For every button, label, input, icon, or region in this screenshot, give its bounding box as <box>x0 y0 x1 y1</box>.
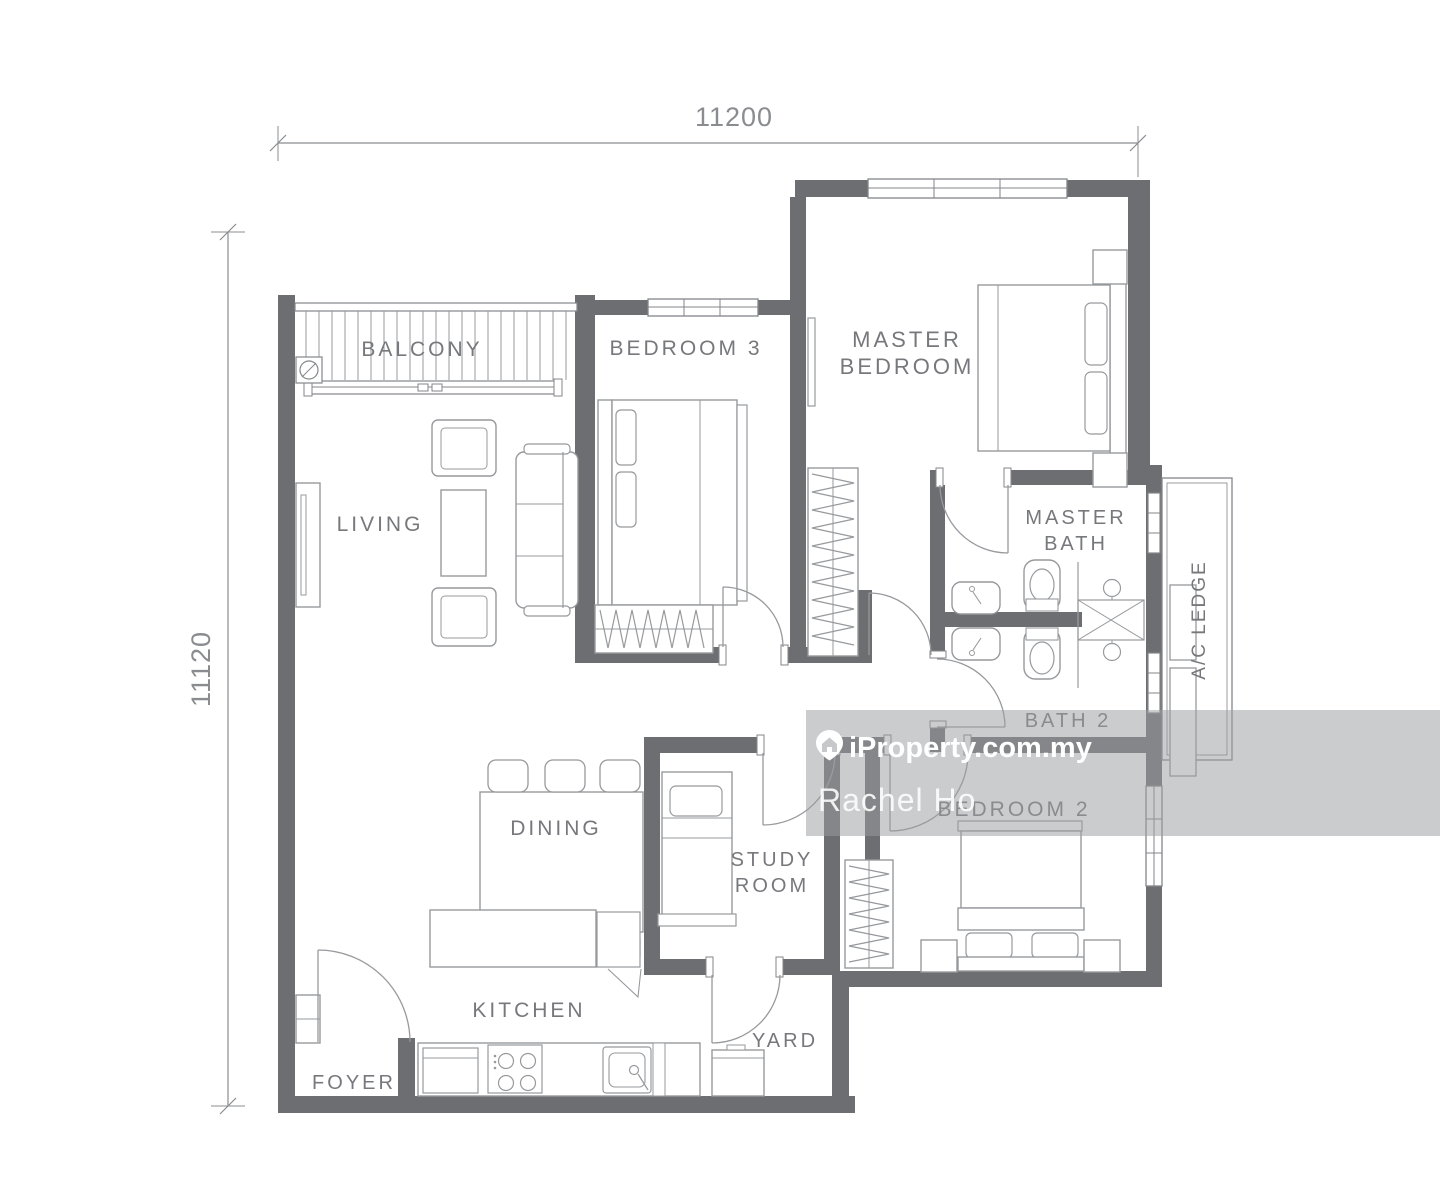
wall-bedroom2-bottom <box>832 971 1162 987</box>
master-tv <box>808 318 815 406</box>
wall-bedroom3-top-a <box>595 300 648 315</box>
sink-masterbath <box>952 582 1000 614</box>
dining-chair <box>488 760 528 792</box>
wall-between-baths <box>930 612 1082 627</box>
room-label-master-bedroom-2: BEDROOM <box>840 354 975 379</box>
pillow <box>1085 303 1107 365</box>
room-label-foyer: FOYER <box>312 1072 396 1094</box>
door-jamb <box>776 957 783 977</box>
wall-bedroom3-top-b <box>758 300 795 315</box>
nightstand <box>1093 453 1127 487</box>
wall-exterior-left <box>278 295 295 1113</box>
pillow <box>1085 372 1107 434</box>
dimension-left-value: 11120 <box>186 631 216 707</box>
stove-knob <box>494 1067 497 1070</box>
washer-lid <box>727 1045 745 1050</box>
window-masterbath <box>1148 493 1160 553</box>
door-jamb <box>781 645 788 665</box>
armchair <box>432 588 496 646</box>
door-jamb <box>936 468 943 487</box>
bed-headboard <box>598 400 612 605</box>
entrance-door-swing <box>318 950 410 1042</box>
room-label-bedroom3: BEDROOM 3 <box>609 337 762 360</box>
slider-handle <box>432 384 442 391</box>
toilet-tank <box>1026 599 1058 611</box>
shower-head <box>1104 580 1121 597</box>
stove <box>488 1045 542 1093</box>
wall-study-top <box>644 737 763 753</box>
nightstand <box>921 940 957 972</box>
stove-knob <box>494 1055 497 1058</box>
wall-hall-stub <box>858 590 872 663</box>
room-label-dining: DINING <box>510 817 602 840</box>
wall-study-bottom-b <box>780 959 840 975</box>
pillow <box>616 472 636 527</box>
wall-study-left <box>644 753 660 975</box>
bedroom2-bed <box>961 831 1081 908</box>
room-label-balcony: BALCONY <box>361 338 482 361</box>
room-label-kitchen: KITCHEN <box>472 999 585 1022</box>
washing-machine <box>712 1050 764 1096</box>
wall-bedroom2-right-b <box>1146 886 1162 971</box>
slider-handle <box>418 384 428 391</box>
floor-plan-page: BALCONYLIVINGBEDROOM 3MASTERBEDROOMMASTE… <box>0 0 1440 1183</box>
room-label-yard: YARD <box>752 1030 818 1052</box>
wall-corner-masterbath <box>1128 465 1162 485</box>
room-label-master-bedroom: MASTER <box>852 327 962 352</box>
bed2-blanket <box>958 908 1084 930</box>
dining-chair <box>545 760 585 792</box>
nightstand <box>1093 250 1127 284</box>
door-jamb <box>757 735 764 755</box>
dimension-top-value: 11200 <box>695 102 773 132</box>
bed-footboard <box>658 914 736 926</box>
bed-headboard <box>958 957 1084 971</box>
door-jamb <box>706 957 713 977</box>
tv <box>301 495 306 595</box>
fridge <box>423 1048 478 1093</box>
bed-footboard <box>737 405 747 601</box>
sink-unit <box>603 1047 651 1093</box>
nightstand <box>1084 940 1120 972</box>
wall-master-top-a <box>795 180 868 197</box>
kitchen-island <box>430 910 596 967</box>
pillow <box>966 933 1012 958</box>
dining-chair <box>600 760 640 792</box>
door-jamb <box>930 651 946 658</box>
room-label-master-bath-2: BATH <box>1044 533 1108 555</box>
cabinet-flap <box>608 969 641 997</box>
tv-console <box>296 483 320 607</box>
door-jamb <box>1004 468 1011 487</box>
room-label-ac-ledge: A/C LEDGE <box>1189 560 1210 679</box>
floor-plan: BALCONYLIVINGBEDROOM 3MASTERBEDROOMMASTE… <box>0 0 1440 1183</box>
island-cabinet <box>597 912 640 967</box>
sink-bath2 <box>952 628 1000 660</box>
shower-head <box>1104 644 1121 661</box>
bed-headboard <box>1110 282 1126 454</box>
masterbath-door-swing <box>940 485 1008 553</box>
master-hall-door-swing <box>869 593 931 655</box>
room-label-study-room-2: ROOM <box>735 875 809 897</box>
stove-knob <box>494 1061 497 1064</box>
watermark-agent: Rachel Ho <box>818 782 976 818</box>
wall-master-top-b <box>1067 180 1150 197</box>
room-label-study-room: STUDY <box>731 849 814 871</box>
tall-cabinet <box>653 1043 665 1096</box>
room-label-master-bath: MASTER <box>1025 507 1126 529</box>
door-jamb <box>719 645 726 665</box>
wall-foyer-stub <box>398 1038 415 1096</box>
watermark-brand: iProperty.com.my <box>849 732 1092 764</box>
sofa <box>516 452 578 608</box>
room-label-living: LIVING <box>337 513 424 536</box>
wall-master-left <box>790 197 806 663</box>
door-jamb <box>554 379 562 396</box>
balcony-parapet <box>295 303 577 311</box>
toilet-tank <box>1026 628 1058 640</box>
wall-master-right <box>1128 180 1150 485</box>
coffee-table <box>441 490 486 576</box>
pillow <box>616 410 636 465</box>
pillow <box>670 786 722 816</box>
wall-exterior-bottom <box>278 1096 855 1113</box>
window-bath2 <box>1148 653 1160 713</box>
wall-study-bottom-a <box>644 959 712 975</box>
pillow <box>1032 933 1078 958</box>
wall-yard-right <box>832 975 849 1113</box>
